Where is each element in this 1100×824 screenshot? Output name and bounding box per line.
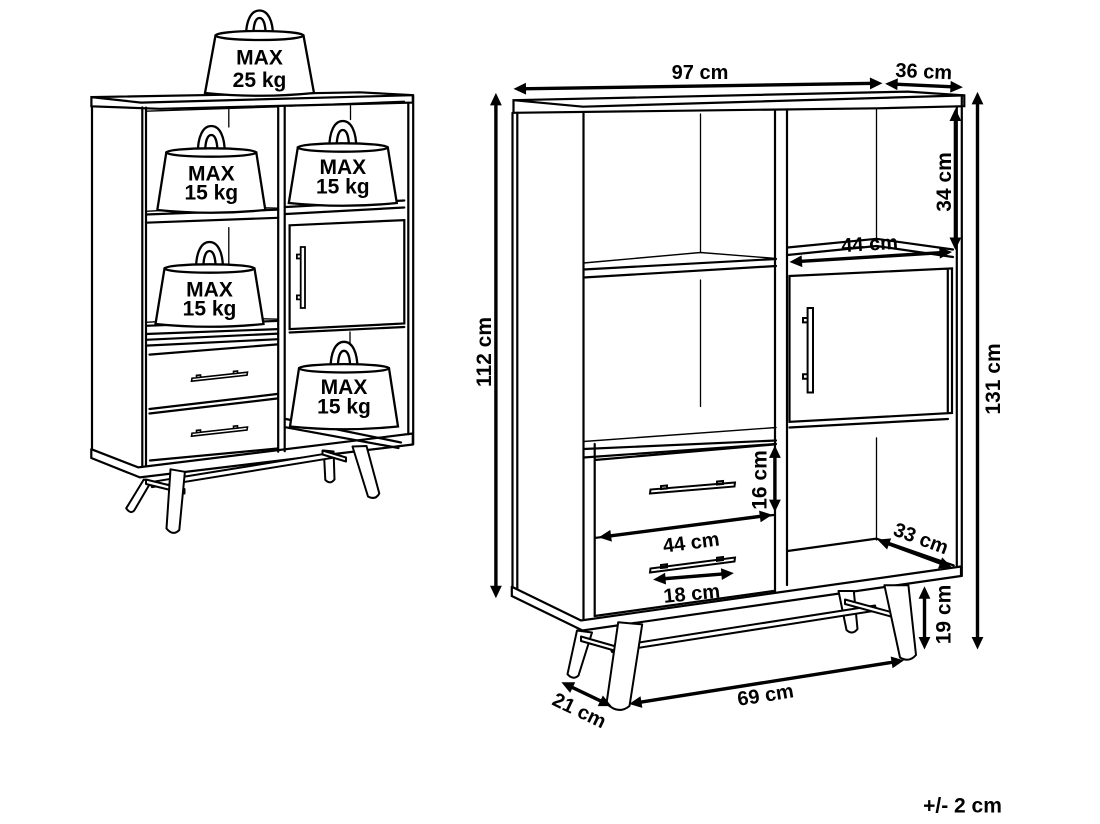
svg-text:15 kg: 15 kg — [316, 176, 370, 199]
svg-text:15 kg: 15 kg — [184, 182, 238, 205]
svg-text:15 kg: 15 kg — [183, 298, 237, 321]
svg-text:112 cm: 112 cm — [473, 317, 496, 387]
svg-text:44 cm: 44 cm — [841, 232, 899, 257]
svg-text:19 cm: 19 cm — [933, 585, 956, 645]
svg-text:131 cm: 131 cm — [982, 343, 1005, 414]
svg-text:34 cm: 34 cm — [933, 152, 956, 212]
svg-text:97 cm: 97 cm — [672, 62, 729, 84]
svg-text:16 cm: 16 cm — [749, 450, 772, 510]
svg-text:15 kg: 15 kg — [317, 395, 371, 418]
svg-text:36 cm: 36 cm — [895, 60, 953, 85]
svg-text:MAX: MAX — [236, 47, 283, 70]
svg-text:+/- 2 cm: +/- 2 cm — [923, 795, 1002, 818]
svg-text:25 kg: 25 kg — [233, 69, 287, 92]
